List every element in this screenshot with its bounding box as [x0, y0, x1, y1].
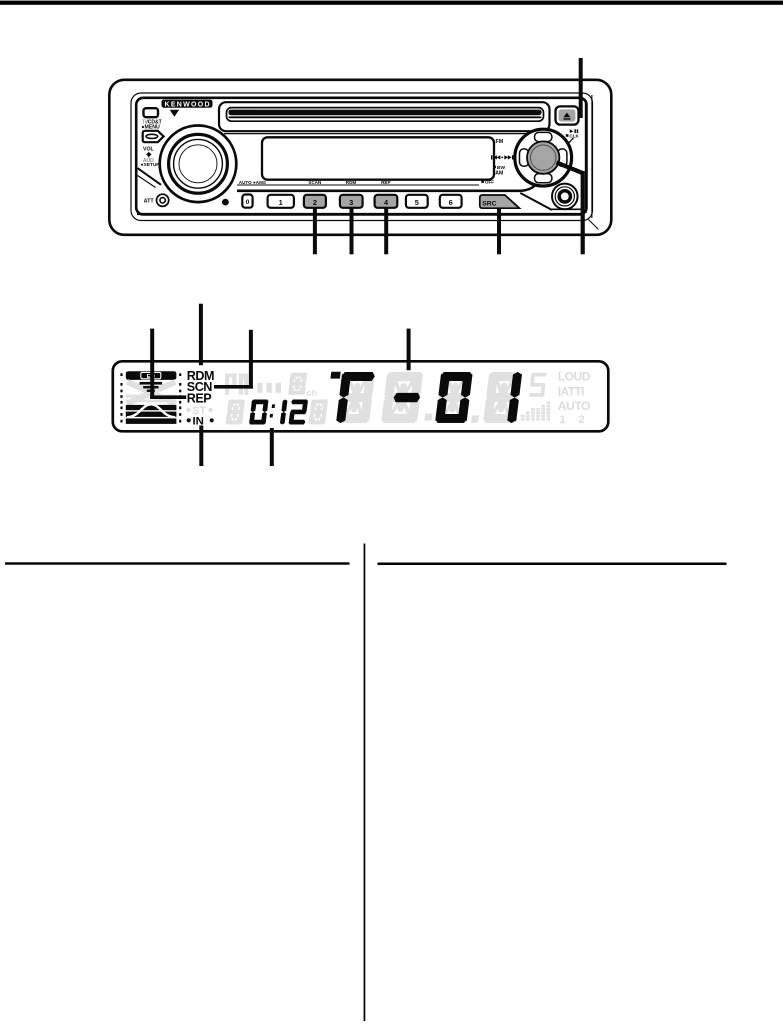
svg-text:1: 1: [279, 198, 283, 207]
svg-text:SRC: SRC: [482, 200, 496, 207]
svg-text:AUTO: AUTO: [558, 399, 590, 413]
svg-text:SCAN: SCAN: [308, 180, 322, 185]
svg-text:1: 1: [560, 414, 566, 426]
svg-text:REP: REP: [381, 180, 390, 185]
svg-text:2: 2: [313, 198, 317, 207]
svg-text:KENWOOD: KENWOOD: [165, 101, 210, 108]
svg-text:2: 2: [579, 414, 585, 426]
svg-text:REP: REP: [187, 392, 211, 406]
svg-text:ch: ch: [306, 388, 317, 399]
svg-text:LOUD: LOUD: [558, 369, 591, 383]
svg-text:CLK: CLK: [569, 133, 579, 138]
svg-text:ATT: ATT: [144, 198, 155, 204]
svg-text:IATTI: IATTI: [558, 384, 584, 398]
svg-text:OFF: OFF: [485, 180, 494, 185]
svg-text:AUTO ●AMS: AUTO ●AMS: [239, 180, 266, 185]
svg-text:VOL: VOL: [143, 147, 154, 153]
svg-text:6: 6: [449, 198, 453, 207]
svg-text:3: 3: [349, 198, 353, 207]
svg-text:AM: AM: [495, 170, 503, 176]
svg-text:●SETUP: ●SETUP: [141, 162, 161, 168]
svg-text:RDM: RDM: [346, 180, 357, 185]
svg-text:5: 5: [415, 198, 419, 207]
svg-text:0: 0: [246, 199, 250, 206]
svg-text:FM: FM: [496, 139, 504, 145]
svg-text:●MENU: ●MENU: [141, 124, 160, 130]
